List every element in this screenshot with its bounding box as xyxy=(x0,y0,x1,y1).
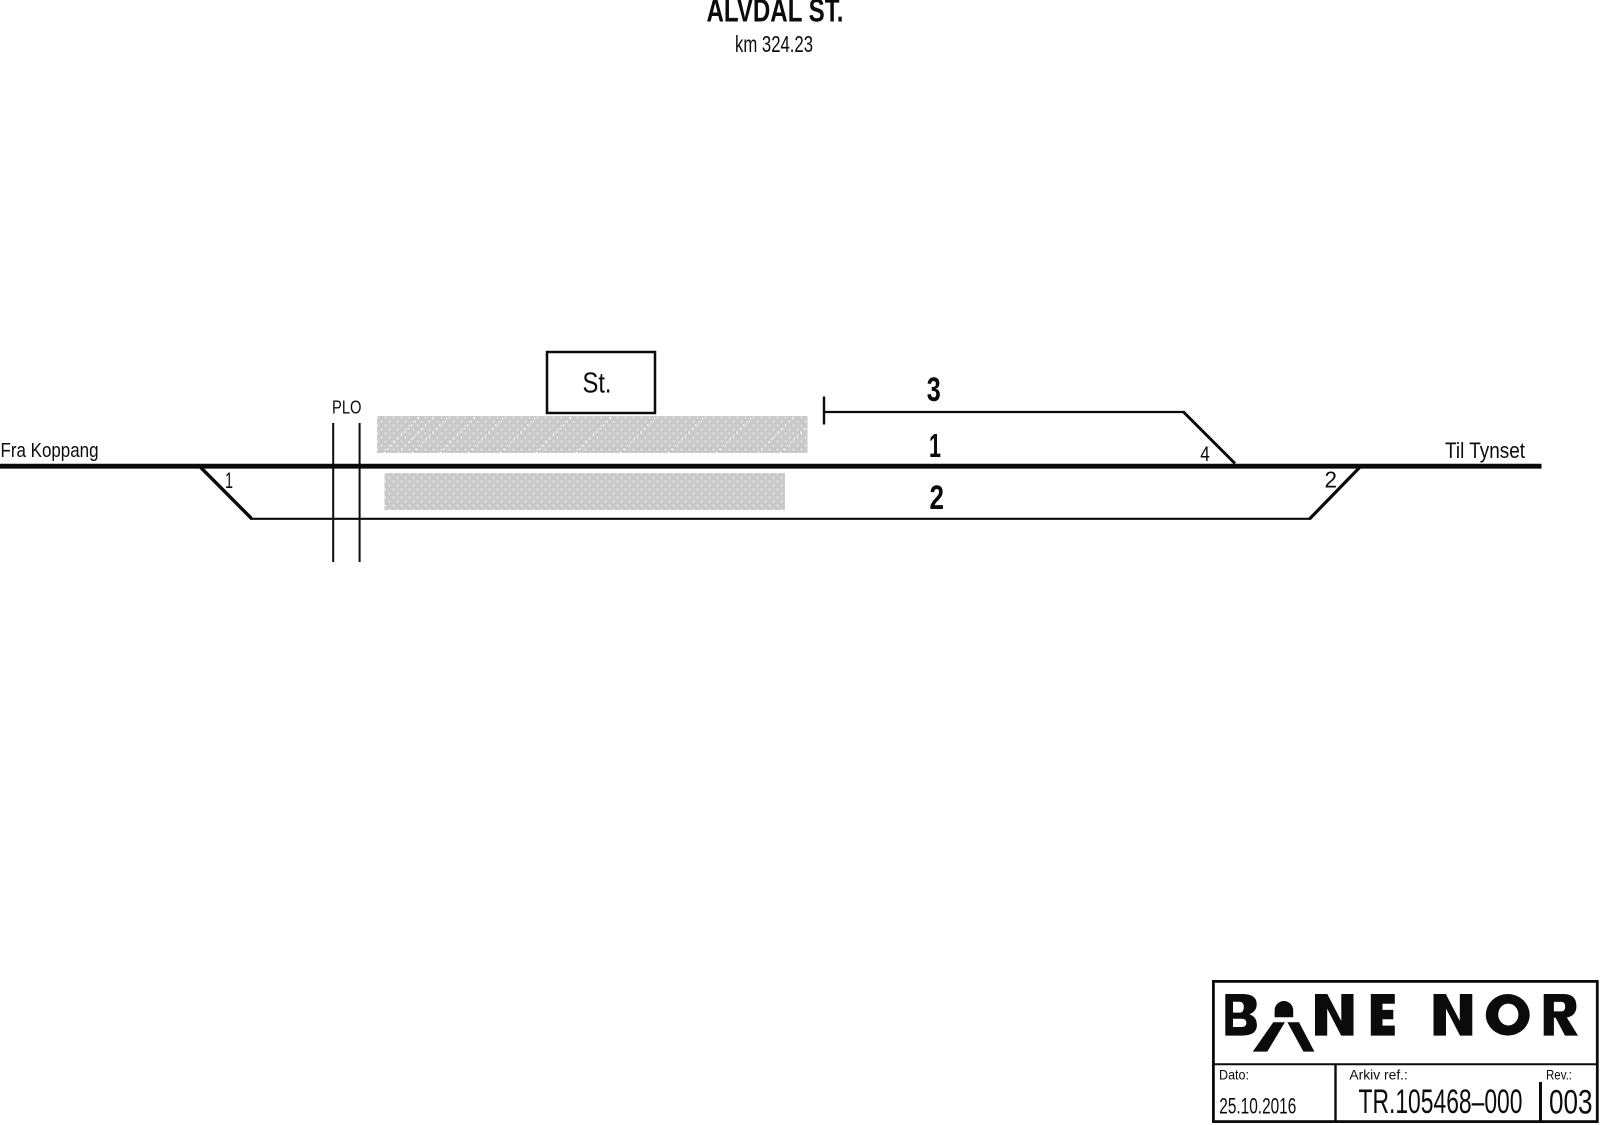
svg-text:1: 1 xyxy=(929,427,941,464)
svg-text:4: 4 xyxy=(1200,443,1210,466)
svg-text:2: 2 xyxy=(930,479,945,517)
svg-text:Dato:: Dato: xyxy=(1219,1066,1249,1082)
svg-text:km 324.23: km 324.23 xyxy=(735,31,813,57)
svg-text:25.10.2016: 25.10.2016 xyxy=(1219,1094,1296,1119)
svg-text:PLO: PLO xyxy=(332,398,362,418)
svg-text:3: 3 xyxy=(927,371,941,409)
svg-text:St.: St. xyxy=(583,368,612,400)
svg-text:ALVDAL ST.: ALVDAL ST. xyxy=(707,0,844,29)
svg-text:Til Tynset: Til Tynset xyxy=(1445,438,1525,463)
svg-text:Arkiv ref.:: Arkiv ref.: xyxy=(1349,1066,1408,1082)
svg-text:003: 003 xyxy=(1549,1083,1593,1121)
svg-text:2: 2 xyxy=(1324,467,1337,493)
svg-text:1: 1 xyxy=(225,468,233,493)
svg-text:Fra Koppang: Fra Koppang xyxy=(1,439,99,462)
svg-text:TR.105468–000: TR.105468–000 xyxy=(1359,1083,1523,1121)
svg-text:Rev.:: Rev.: xyxy=(1546,1066,1572,1082)
